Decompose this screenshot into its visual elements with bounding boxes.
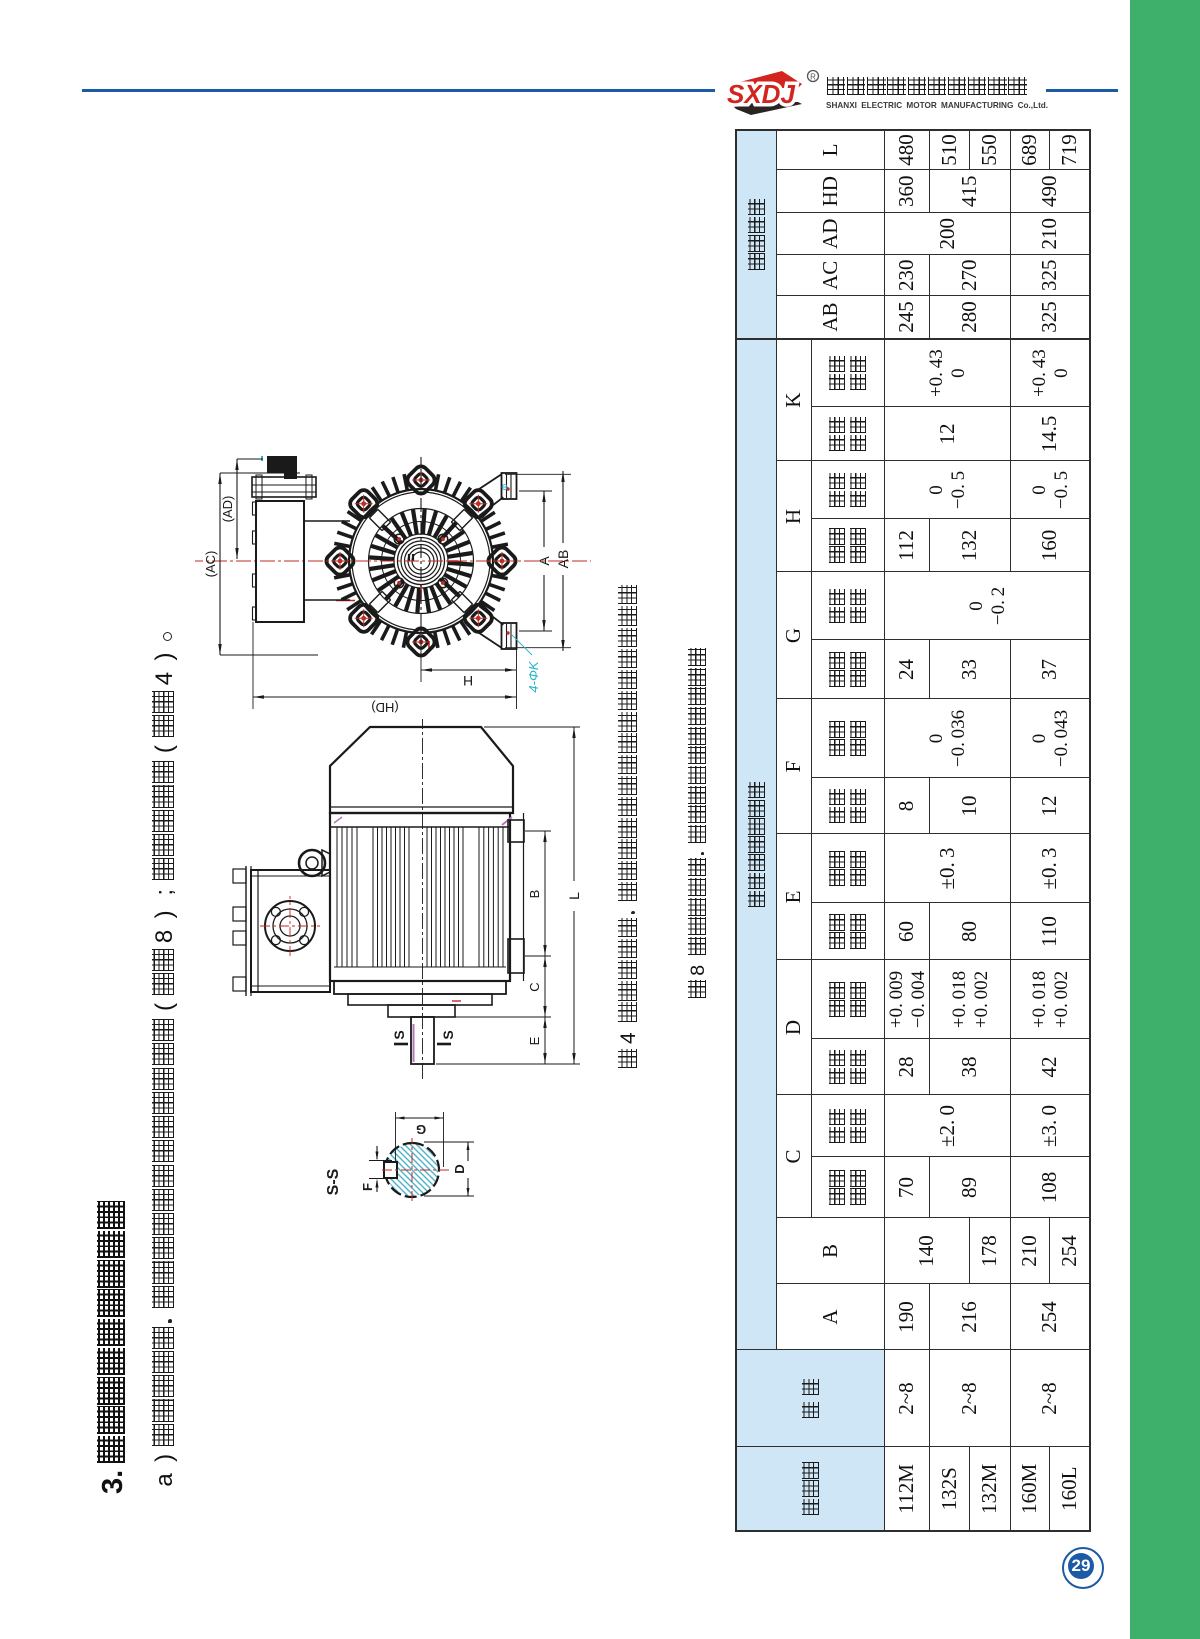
svg-text:D: D — [452, 1164, 467, 1173]
svg-text:AB: AB — [555, 550, 571, 569]
svg-text:C: C — [527, 982, 542, 991]
svg-text:H: H — [463, 673, 473, 689]
svg-text:E: E — [527, 1036, 542, 1045]
svg-text:S-S: S-S — [325, 1168, 342, 1195]
svg-text:S: S — [391, 1030, 407, 1039]
svg-text:G: G — [416, 1122, 426, 1137]
svg-text:4-ΦK: 4-ΦK — [526, 660, 541, 692]
svg-text:L: L — [566, 892, 582, 900]
svg-text:A: A — [536, 556, 552, 566]
svg-text:(HD): (HD) — [371, 700, 398, 715]
svg-text:(AC): (AC) — [203, 551, 218, 578]
svg-text:S: S — [440, 1030, 456, 1039]
svg-text:Φ: Φ — [500, 483, 510, 490]
svg-text:B: B — [527, 890, 542, 899]
svg-text:(AD): (AD) — [220, 496, 235, 523]
svg-text:F: F — [360, 1183, 375, 1191]
